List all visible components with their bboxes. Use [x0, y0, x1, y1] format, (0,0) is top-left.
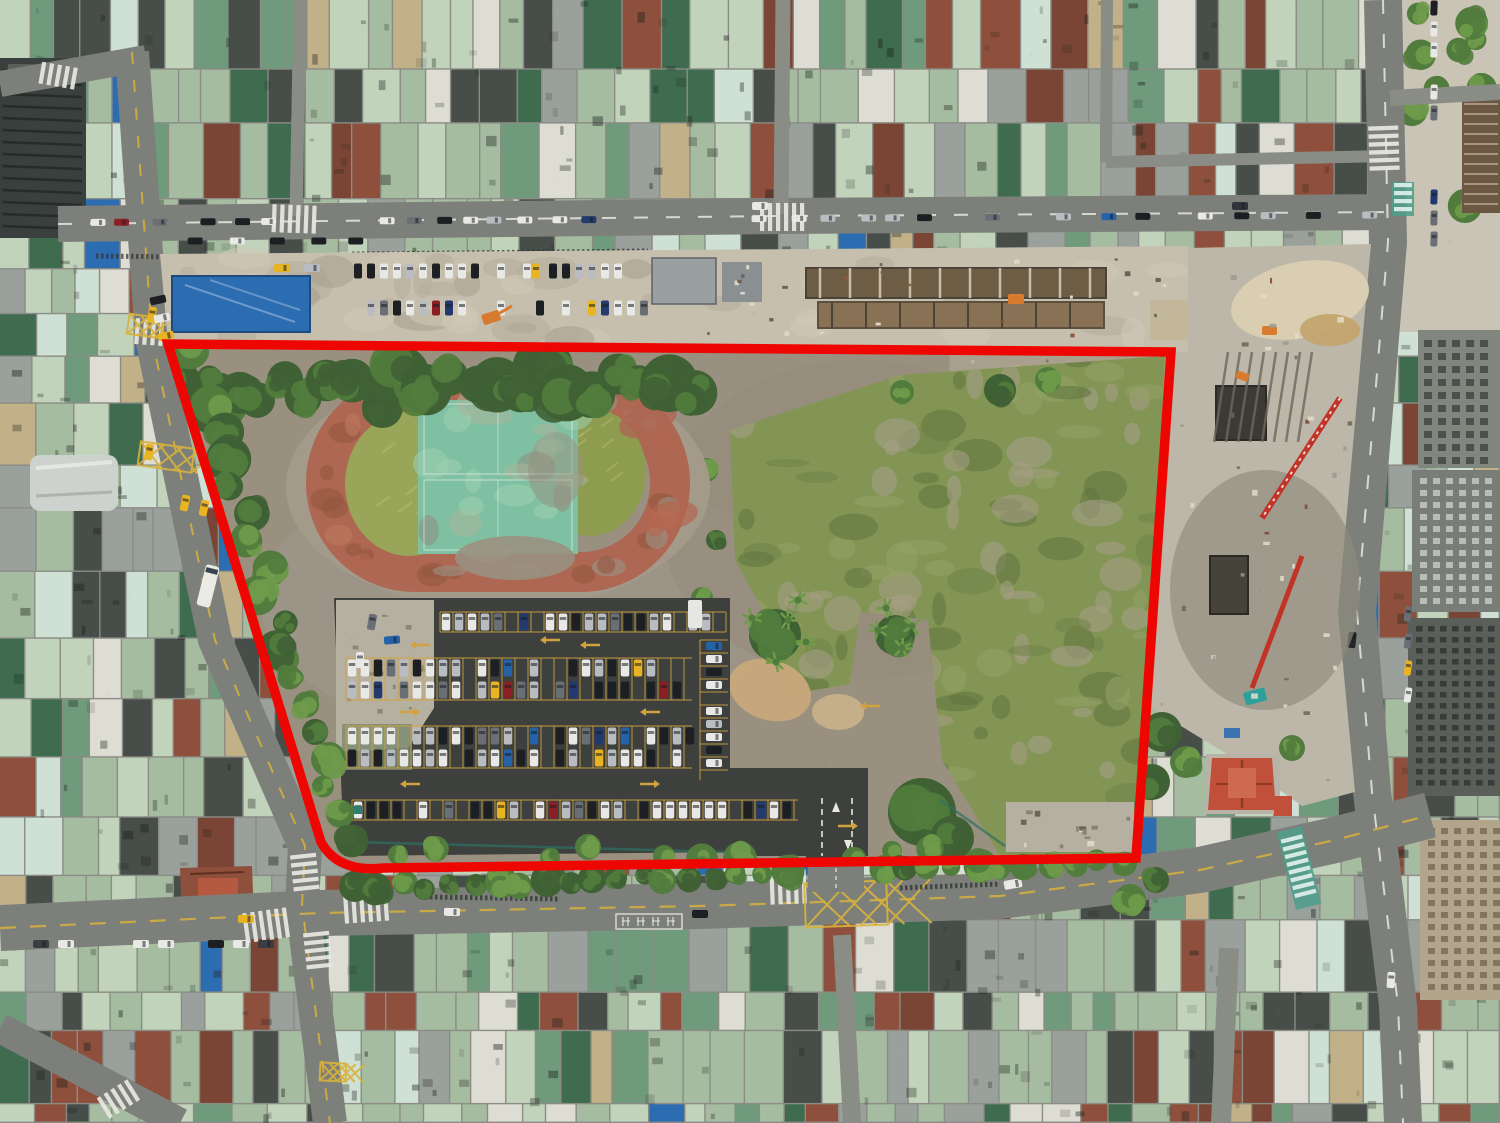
aerial-photo-canvas	[0, 0, 1500, 1123]
blue-tarp-structure	[172, 276, 310, 332]
box-truck-icon	[688, 600, 702, 628]
construction-zone-north	[149, 246, 1210, 354]
redevelopment-site	[165, 331, 1185, 876]
aerial-photo	[0, 0, 1500, 1123]
